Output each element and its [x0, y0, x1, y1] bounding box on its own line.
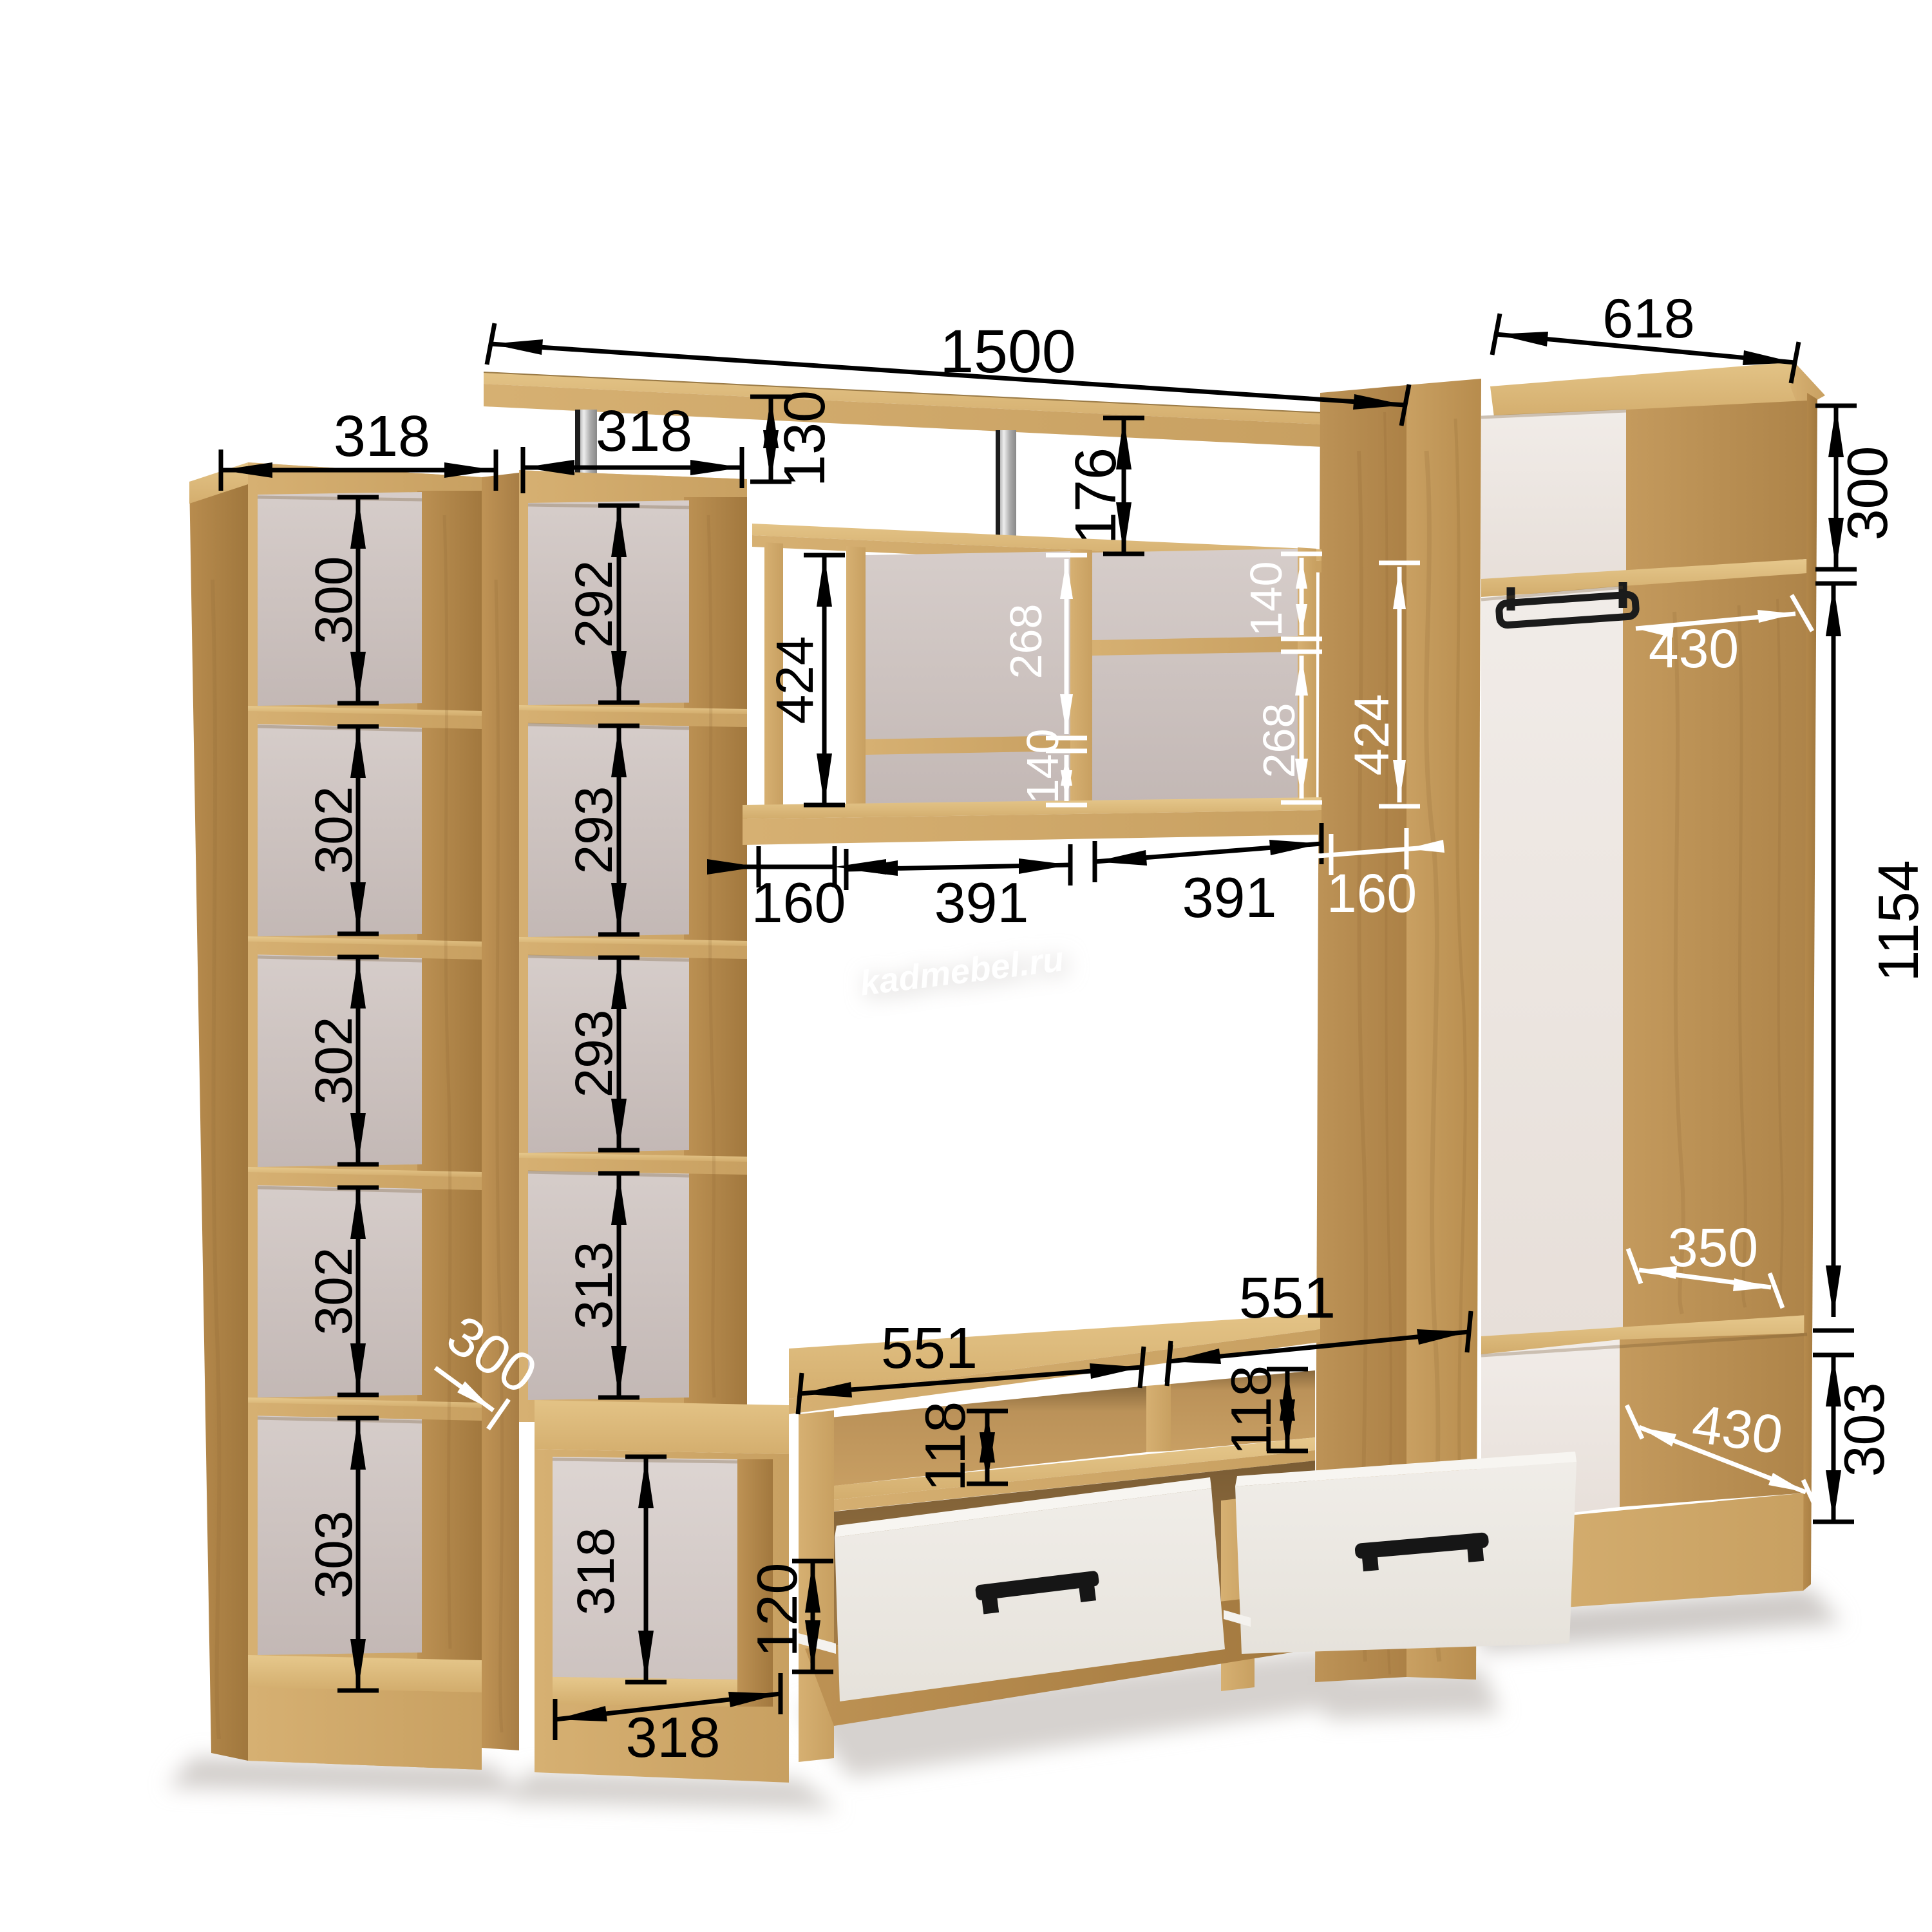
- svg-text:118: 118: [1219, 1365, 1283, 1455]
- svg-text:140: 140: [1241, 562, 1291, 637]
- svg-text:303: 303: [305, 1511, 363, 1599]
- svg-text:424: 424: [1345, 694, 1399, 776]
- svg-text:176: 176: [1064, 448, 1128, 544]
- svg-text:318: 318: [626, 1705, 721, 1769]
- svg-text:118: 118: [913, 1401, 977, 1492]
- svg-text:292: 292: [565, 560, 623, 649]
- svg-text:302: 302: [305, 1247, 363, 1336]
- svg-text:430: 430: [1689, 1393, 1786, 1466]
- svg-text:430: 430: [1649, 618, 1739, 679]
- svg-text:391: 391: [934, 871, 1029, 934]
- svg-text:120: 120: [745, 1563, 809, 1658]
- svg-text:300: 300: [1835, 446, 1899, 541]
- svg-text:160: 160: [1327, 863, 1417, 923]
- svg-text:268: 268: [1001, 604, 1051, 679]
- svg-text:302: 302: [305, 786, 363, 875]
- svg-text:140: 140: [1018, 729, 1068, 804]
- svg-text:303: 303: [1832, 1383, 1896, 1477]
- svg-text:268: 268: [1254, 703, 1304, 779]
- svg-text:1500: 1500: [940, 317, 1075, 386]
- svg-text:318: 318: [567, 1528, 625, 1616]
- svg-text:300: 300: [305, 556, 363, 645]
- svg-text:293: 293: [565, 1010, 623, 1098]
- svg-text:551: 551: [881, 1316, 978, 1381]
- svg-text:318: 318: [596, 399, 692, 464]
- svg-text:313: 313: [565, 1242, 623, 1330]
- svg-text:350: 350: [1668, 1217, 1758, 1278]
- svg-text:302: 302: [305, 1017, 363, 1105]
- svg-text:424: 424: [766, 636, 824, 724]
- svg-text:160: 160: [752, 871, 846, 934]
- svg-text:1154: 1154: [1866, 860, 1930, 981]
- svg-text:130: 130: [773, 390, 837, 487]
- svg-text:318: 318: [334, 404, 430, 469]
- svg-text:293: 293: [565, 786, 623, 875]
- svg-text:391: 391: [1182, 866, 1277, 929]
- svg-text:551: 551: [1239, 1266, 1336, 1331]
- svg-text:618: 618: [1602, 288, 1695, 350]
